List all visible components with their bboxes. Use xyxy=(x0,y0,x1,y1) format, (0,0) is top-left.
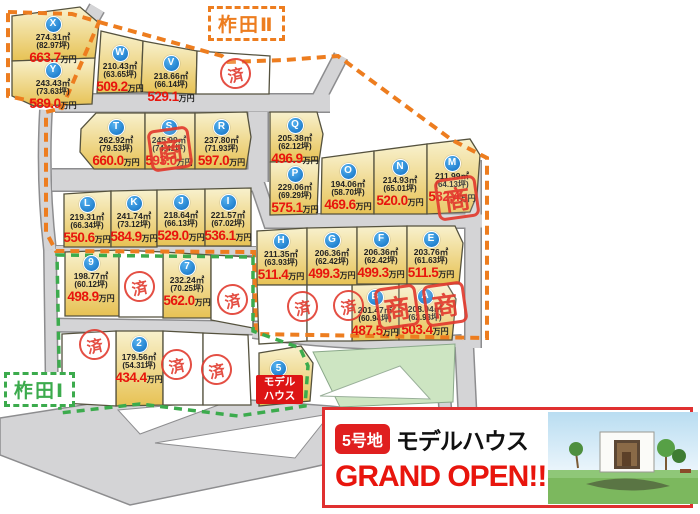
lot-id-badge: G xyxy=(324,232,341,249)
lot5-badge: 5号地 xyxy=(335,424,390,454)
lot-price: 499.3万円 xyxy=(355,266,407,281)
lot-card-n[interactable]: N 214.93㎡ (65.01坪) 520.0万円 xyxy=(374,156,426,208)
lot-id-badge: F xyxy=(373,231,390,248)
deal-stamp: 商 xyxy=(146,125,193,172)
lot-price: 499.3万円 xyxy=(306,267,358,282)
lot-card-h[interactable]: H 211.35㎡ (63.93坪) 511.4万円 xyxy=(255,230,307,282)
lot-card-j[interactable]: J 218.64㎡ (66.13坪) 529.0万円 xyxy=(156,191,206,243)
lot-card-w[interactable]: W 210.43㎡ (63.65坪) 509.2万円 xyxy=(95,42,145,94)
lot-price: 550.6万円 xyxy=(62,231,112,246)
lot-card-e[interactable]: E 203.76㎡ (61.63坪) 511.5万円 xyxy=(405,228,457,280)
lot-card-2[interactable]: 2 179.56㎡ (54.31坪) 434.4万円 xyxy=(113,333,165,385)
model-house-marker[interactable]: モデル ハウス xyxy=(256,375,303,404)
lot-price: 509.2万円 xyxy=(95,80,145,95)
lot-card-v[interactable]: V 218.66㎡ (66.14坪) 529.1万円 xyxy=(145,52,197,104)
lot-id-badge: N xyxy=(392,159,409,176)
lot-id-badge: R xyxy=(213,119,230,136)
lot-price: 660.0万円 xyxy=(87,154,145,169)
lot-id-badge: V xyxy=(163,55,180,72)
lot-card-p[interactable]: P 229.06㎡ (69.29坪) 575.1万円 xyxy=(269,163,321,215)
lot-card-7[interactable]: 7 232.24㎡ (70.25坪) 562.0万円 xyxy=(160,256,214,308)
lot-id-badge: 9 xyxy=(83,255,100,272)
lot-price: 469.6万円 xyxy=(322,198,374,213)
lot-id-badge: Q xyxy=(287,117,304,134)
lot-price: 511.5万円 xyxy=(405,266,457,281)
lot-id-badge: J xyxy=(173,194,190,211)
lot-price: 562.0万円 xyxy=(160,294,214,309)
lot-card-x[interactable]: X 274.31㎡ (82.97坪) 663.7万円 xyxy=(20,13,86,65)
lot-id-badge: E xyxy=(423,231,440,248)
lot-card-f[interactable]: F 206.36㎡ (62.42坪) 499.3万円 xyxy=(355,228,407,280)
lot-price: 511.4万円 xyxy=(255,268,307,283)
lot-price: 434.4万円 xyxy=(113,371,165,386)
lot-price: 597.0万円 xyxy=(194,154,249,169)
deal-stamp: 商 xyxy=(421,280,468,327)
model-house-illustration xyxy=(548,412,698,504)
model-house-label: ハウス xyxy=(256,390,303,403)
lot-id-badge: W xyxy=(112,45,129,62)
lot-card-9[interactable]: 9 198.77㎡ (60.12坪) 498.9万円 xyxy=(63,252,119,304)
lot-card-l[interactable]: L 219.31㎡ (66.34坪) 550.6万円 xyxy=(62,193,112,245)
lot-card-i[interactable]: I 221.57㎡ (67.02坪) 536.1万円 xyxy=(203,191,253,243)
lot-price: 498.9万円 xyxy=(63,290,119,305)
lot-card-o[interactable]: O 194.06㎡ (58.70坪) 469.6万円 xyxy=(322,160,374,212)
lot-id-badge: H xyxy=(273,233,290,250)
lot-price: 529.1万円 xyxy=(145,90,197,105)
grand-open-banner[interactable]: 5号地 モデルハウス GRAND OPEN!! xyxy=(322,407,693,508)
park-area xyxy=(313,344,455,407)
lot-price: 589.0万円 xyxy=(20,97,86,112)
lot-card-q[interactable]: Q 205.38㎡ (62.12坪) 496.9万円 xyxy=(269,114,321,166)
lot-id-badge: Y xyxy=(45,62,62,79)
lot-card-g[interactable]: G 206.36㎡ (62.42坪) 499.3万円 xyxy=(306,229,358,281)
lot-card-r[interactable]: R 237.80㎡ (71.93坪) 597.0万円 xyxy=(194,116,249,168)
lot-id-badge: 7 xyxy=(179,259,196,276)
model-house-label: モデル xyxy=(256,376,303,389)
lot-price: 584.9万円 xyxy=(110,230,158,245)
lot-id-badge: L xyxy=(79,196,96,213)
deal-stamp: 商 xyxy=(433,174,480,221)
lot-id-badge: I xyxy=(220,194,237,211)
deal-stamp: 商 xyxy=(373,283,420,330)
banner-text-block: 5号地 モデルハウス GRAND OPEN!! xyxy=(325,418,548,498)
lot-id-badge: O xyxy=(340,163,357,180)
region-label-kakita1: 柞田Ⅰ xyxy=(4,372,75,407)
lot-id-badge: M xyxy=(444,155,461,172)
lot-price: 520.0万円 xyxy=(374,194,426,209)
lot-price: 536.1万円 xyxy=(203,229,253,244)
region-label-kakita2: 柞田Ⅱ xyxy=(208,6,285,41)
lot-price: 575.1万円 xyxy=(269,201,321,216)
lot-id-badge: X xyxy=(45,16,62,33)
lot-id-badge: 2 xyxy=(131,336,148,353)
banner-headline: GRAND OPEN!! xyxy=(335,460,546,494)
lot-price: 529.0万円 xyxy=(156,229,206,244)
lot-card-y[interactable]: Y 243.43㎡ (73.63坪) 589.0万円 xyxy=(20,59,86,111)
lot-id-badge: K xyxy=(126,195,143,212)
lot-card-t[interactable]: T 262.92㎡ (79.53坪) 660.0万円 xyxy=(87,116,145,168)
banner-title: モデルハウス xyxy=(396,422,528,456)
lot-id-badge: P xyxy=(287,166,304,183)
site-plan-map: 柞田Ⅱ 柞田Ⅰ X 274.31㎡ (82.97坪) 663.7万円 Y 243… xyxy=(0,0,700,514)
lot-id-badge: T xyxy=(108,119,125,136)
lot-card-k[interactable]: K 241.74㎡ (73.12坪) 584.9万円 xyxy=(110,192,158,244)
